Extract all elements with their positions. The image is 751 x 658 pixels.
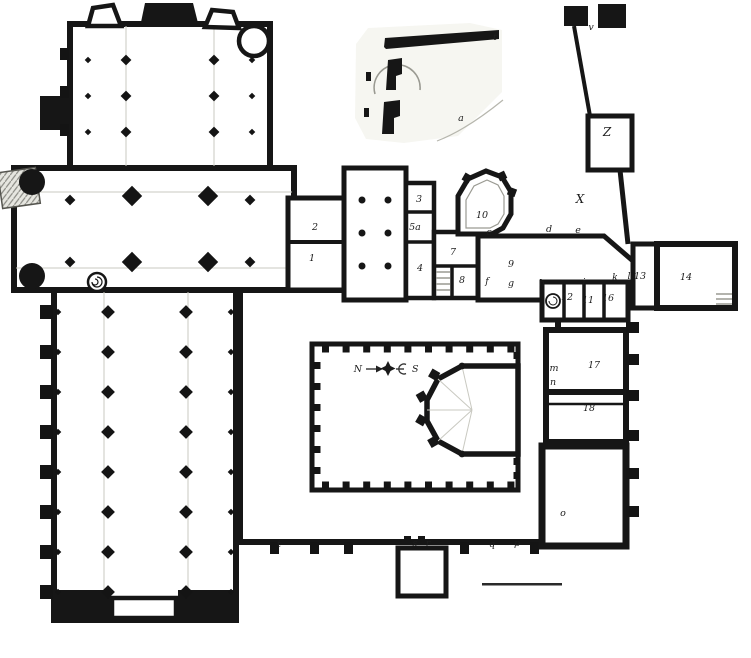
- floor-plan-svg: N S tavZX2135a47810cde9fghikl1314121116m…: [0, 0, 751, 658]
- nave-buttress: [40, 385, 53, 399]
- compass-north-label: N: [353, 364, 363, 375]
- south-buttress: [310, 542, 319, 554]
- chevet-round-chapel: [239, 26, 269, 56]
- plan-label-16: 16: [602, 293, 614, 304]
- south-annex-room: [398, 548, 446, 596]
- garth-tooth: [514, 458, 521, 465]
- plan-label-n: n: [550, 377, 556, 388]
- plan-label-17: 17: [588, 360, 601, 371]
- plan-label-c: c: [486, 227, 492, 238]
- plan-label-1: 1: [309, 253, 315, 264]
- garth-tooth: [507, 482, 514, 489]
- south-buttress: [344, 542, 353, 554]
- plan-label-7: 7: [450, 247, 457, 258]
- south-buttress: [460, 542, 469, 554]
- chevet-chapel: [205, 10, 239, 28]
- transept-turret: [19, 263, 45, 289]
- chevet-chapel: [88, 5, 121, 26]
- church-nave: [54, 290, 236, 620]
- garth-tooth: [343, 346, 350, 353]
- east-buttress: [626, 468, 639, 479]
- garth-tooth: [363, 482, 370, 489]
- small-spiral-stair: [546, 294, 560, 308]
- choir-buttress: [60, 124, 69, 136]
- inset-chapel-plan: [355, 23, 503, 143]
- garth-tooth: [322, 346, 329, 353]
- nave-buttress: [40, 425, 53, 439]
- nave-buttress: [40, 585, 53, 599]
- inset-tick: [366, 72, 371, 81]
- garth-tooth: [314, 404, 321, 411]
- garth-tooth: [425, 482, 432, 489]
- plan-label-18: 18: [583, 403, 595, 414]
- precinct-wall: [620, 170, 628, 244]
- plan-label-h: h: [539, 278, 545, 289]
- west-portal: [112, 598, 176, 618]
- door-jamb: [418, 536, 425, 544]
- east-buttress: [626, 430, 639, 441]
- plan-label-4: 4: [416, 263, 423, 274]
- plan-label-t: t: [277, 539, 281, 550]
- east-buttress: [626, 354, 639, 365]
- garth-tooth: [384, 482, 391, 489]
- garth-tooth: [446, 482, 453, 489]
- chevet-tower: [140, 3, 199, 27]
- plan-label-k: k: [612, 272, 618, 283]
- garth-tooth: [322, 482, 329, 489]
- west-tower: [56, 590, 110, 620]
- nave-buttress: [40, 465, 53, 479]
- plan-label-q: q: [489, 539, 495, 550]
- plan-label-2: 2: [311, 222, 318, 233]
- plan-label-g: g: [508, 278, 514, 289]
- east-buttress: [626, 390, 639, 401]
- compass-south-label: S: [412, 364, 419, 375]
- garth-tooth: [466, 482, 473, 489]
- garth-tooth: [404, 482, 411, 489]
- plan-label-m: m: [549, 363, 558, 374]
- garth-tooth: [314, 425, 321, 432]
- plan-label-9: 9: [508, 259, 514, 270]
- vaulted-hall: [344, 168, 406, 300]
- garth-tooth: [363, 346, 370, 353]
- engraved-floor-plan: N S tavZX2135a47810cde9fghikl1314121116m…: [0, 0, 751, 658]
- garth-tooth: [425, 346, 432, 353]
- room-o: [542, 446, 626, 546]
- plan-label-d: d: [546, 224, 552, 235]
- plan-label-a: a: [458, 113, 464, 124]
- plan-label-5a: 5a: [409, 222, 421, 233]
- fountain-pavilion: [415, 363, 518, 458]
- transept-turret: [19, 169, 45, 195]
- garth-tooth: [487, 482, 494, 489]
- plan-label-e: e: [575, 225, 581, 236]
- room-18: [546, 392, 626, 442]
- garth-tooth: [466, 346, 473, 353]
- south-buttress: [530, 542, 539, 554]
- plan-label-l: l: [627, 271, 630, 282]
- garth-tooth: [343, 482, 350, 489]
- east-buttress: [626, 506, 639, 517]
- garth-tooth: [514, 472, 521, 479]
- plan-label-s: s: [413, 538, 418, 549]
- plan-label-12: 12: [561, 292, 573, 303]
- nave-buttress: [40, 345, 53, 359]
- nave-buttress: [40, 505, 53, 519]
- garth-tooth: [384, 346, 391, 353]
- precinct-wall: [574, 26, 590, 116]
- plan-label-13: 13: [634, 271, 646, 282]
- gate-pier: [598, 4, 626, 28]
- garth-tooth: [314, 362, 321, 369]
- garth-tooth: [446, 346, 453, 353]
- plan-label-14: 14: [680, 272, 692, 283]
- garth-tooth: [314, 467, 321, 474]
- plan-label-3: 3: [416, 194, 422, 205]
- door-jamb: [404, 536, 411, 544]
- east-buttress: [626, 322, 639, 333]
- cloister: [240, 290, 558, 596]
- nave-buttress: [40, 545, 53, 559]
- garth-tooth: [507, 346, 514, 353]
- room-17: [546, 330, 626, 392]
- choir-buttress: [60, 86, 69, 98]
- gate-pier: [564, 6, 588, 26]
- plan-label-i: i: [582, 277, 585, 288]
- church-transept: [14, 168, 294, 290]
- plan-label-X: X: [575, 192, 585, 206]
- plan-label-t: t: [493, 32, 497, 43]
- garth-tooth: [314, 446, 321, 453]
- garth-tooth: [314, 383, 321, 390]
- nave-buttress: [40, 305, 53, 319]
- precinct-wall-gate: [564, 4, 632, 244]
- plan-label-p: p: [514, 538, 520, 549]
- plan-label-8: 8: [459, 275, 465, 286]
- plan-label-Z: Z: [602, 125, 612, 139]
- garth-tooth: [487, 346, 494, 353]
- plan-label-10: 10: [476, 210, 488, 221]
- inset-tick: [364, 108, 369, 117]
- plan-label-o: o: [560, 508, 566, 519]
- garth-tooth: [514, 352, 521, 359]
- chapel-10: [458, 171, 517, 234]
- choir-buttress: [60, 48, 69, 60]
- garth-tooth: [404, 346, 411, 353]
- scale-bar: [482, 583, 562, 586]
- plan-label-v: v: [588, 22, 594, 33]
- plan-label-11: 11: [582, 295, 594, 306]
- spiral-stair: [88, 273, 106, 291]
